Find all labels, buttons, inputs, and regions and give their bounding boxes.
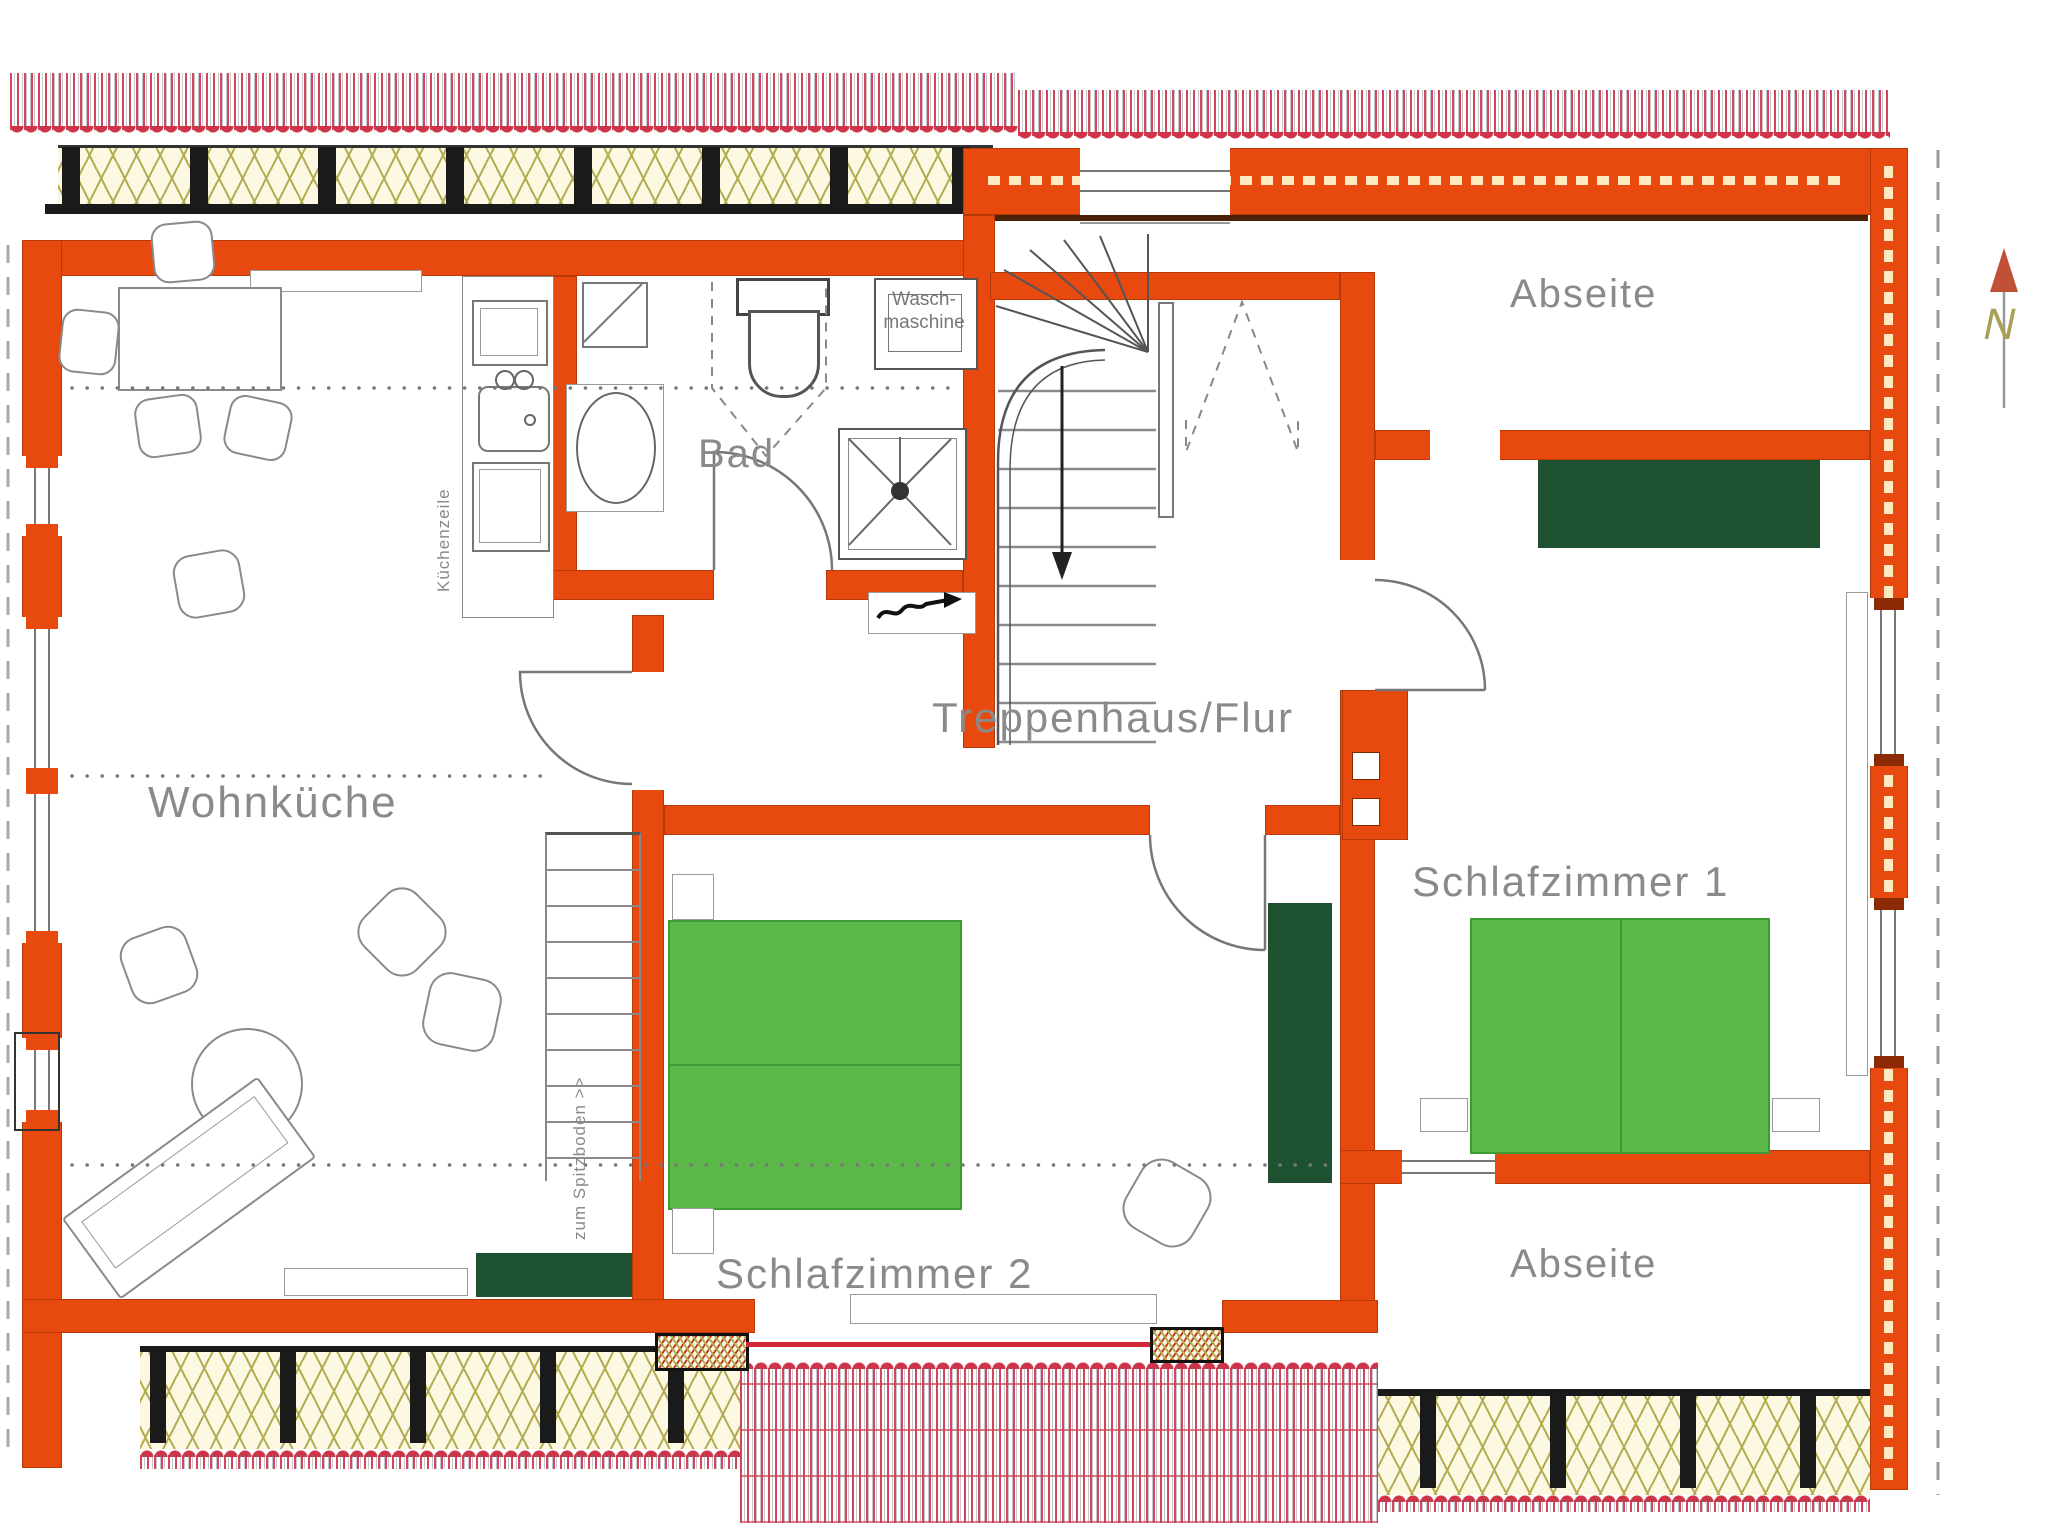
window-frame-right: [1846, 592, 1868, 1076]
wall-bottom-left-outer: [22, 1299, 755, 1333]
nightstand: [672, 1208, 714, 1254]
wardrobe-flur: [1268, 903, 1332, 1183]
wall-schlafzimmer2-top-left: [664, 805, 1150, 835]
label-kuechenzeile: Küchenzeile: [434, 452, 454, 592]
armchair: [1114, 1150, 1221, 1257]
dormer-line: [746, 1342, 1150, 1347]
stair-railing-wall: [1158, 302, 1174, 518]
dormer-window-right: [1150, 1327, 1224, 1363]
floor-plan: Wohnküche Bad Treppenhaus/Flur Schlafzim…: [0, 0, 2048, 1538]
door-schlafzimmer1: [1375, 580, 1485, 690]
toilet-bowl: [748, 310, 820, 398]
room-label-abseite-bottom: Abseite: [1510, 1242, 1657, 1287]
slope-arrow-box: [868, 592, 976, 634]
chimney-flue: [1352, 798, 1380, 826]
nightstand: [1420, 1098, 1468, 1132]
dormer-window-left: [655, 1333, 749, 1371]
chimney-flue: [1352, 752, 1380, 780]
door-schlafzimmer2: [1150, 835, 1265, 950]
sofa: [62, 1076, 317, 1299]
window-sill-schlafzimmer2: [850, 1294, 1157, 1324]
bed-schlafzimmer2: [668, 920, 962, 1210]
room-label-schlafzimmer2: Schlafzimmer 2: [716, 1250, 1033, 1298]
stair-handrail-inner: [1010, 360, 1105, 745]
label-spitzboden: zum Spitzboden >>: [570, 1030, 590, 1240]
sideboard-bottom-green: [476, 1253, 632, 1297]
armchair: [348, 878, 455, 985]
room-label-abseite-top: Abseite: [1510, 272, 1657, 317]
room-label-flur: Treppenhaus/Flur: [932, 694, 1294, 742]
label-waschmaschine: Wasch- maschine: [872, 288, 976, 334]
door-opening-schlafzimmer1: [1340, 560, 1375, 690]
chair: [132, 392, 204, 460]
wall-insulation-dash: [1884, 165, 1893, 1480]
room-label-schlafzimmer1: Schlafzimmer 1: [1412, 858, 1729, 906]
sideboard-bottom-white: [284, 1268, 468, 1296]
stove-inner: [479, 469, 541, 543]
wall-stairwell-top-inner: [990, 272, 1340, 300]
opening-abseite-top: [1430, 430, 1500, 460]
fridge-inner: [480, 308, 538, 356]
stair-arrow-head: [1052, 552, 1072, 580]
slope-mark-stairwell: [1186, 302, 1298, 452]
chair: [170, 547, 248, 622]
stair-treads: [998, 391, 1156, 742]
wall-bad-bottom-left: [551, 570, 714, 600]
door-opening-wohnkueche: [632, 672, 664, 790]
room-label-wohnkueche: Wohnküche: [148, 778, 398, 828]
nightstand: [672, 874, 714, 920]
kitchen-sink: [478, 386, 550, 452]
bed-schlafzimmer1: [1470, 918, 1770, 1154]
stair-handrail: [998, 350, 1105, 745]
armchair: [418, 968, 506, 1056]
washbasin-oval: [576, 392, 656, 504]
chair: [150, 219, 217, 284]
wall-schlafzimmer2-bottom-right: [1222, 1300, 1378, 1333]
wardrobe-abseite-top: [1538, 460, 1820, 548]
room-label-bad: Bad: [698, 432, 775, 477]
nightstand: [1772, 1098, 1820, 1132]
chair: [220, 392, 295, 464]
bath-corner-shelf: [582, 282, 648, 348]
ladder-spitzboden: [545, 832, 641, 1181]
armchair: [114, 920, 204, 1010]
chair: [57, 307, 121, 377]
eave-line: [995, 215, 1868, 221]
door-wohnkueche: [520, 672, 632, 784]
wall-schlafzimmer2-top-right: [1265, 805, 1340, 835]
dining-table: [118, 287, 282, 391]
shower: [838, 428, 967, 560]
north-letter: N: [1979, 300, 2021, 350]
